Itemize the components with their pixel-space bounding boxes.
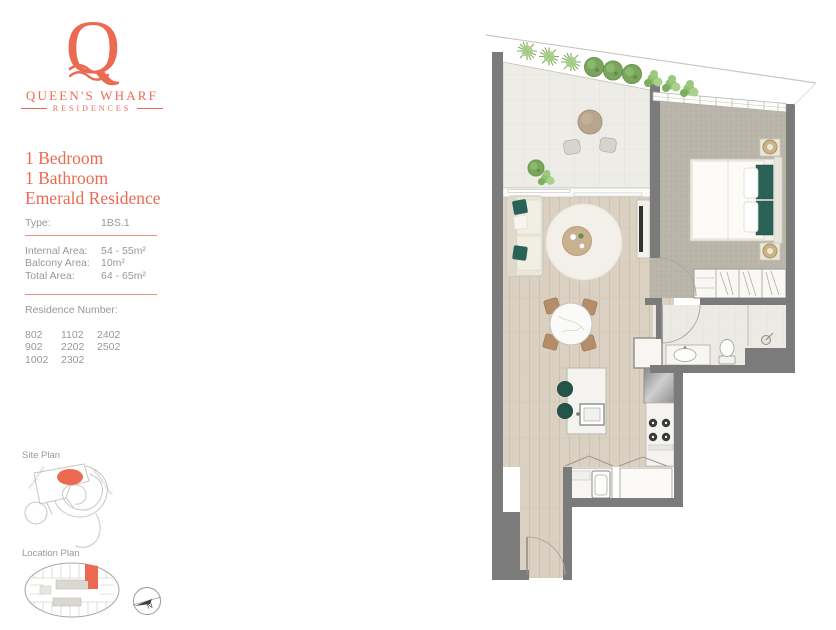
title-line-bedroom: 1 Bedroom	[25, 148, 161, 168]
title-line-bathroom: 1 Bathroom	[25, 168, 161, 188]
pillow-white	[744, 168, 758, 198]
residence-number: 2302	[61, 354, 97, 367]
location-plan-map: N	[14, 556, 166, 626]
dining-table	[550, 303, 592, 345]
throw-pillow	[512, 245, 528, 261]
residence-number: 1002	[25, 354, 61, 367]
residence-number-label: Residence Number:	[25, 304, 157, 317]
vanity	[666, 345, 710, 365]
unit-title: 1 Bedroom 1 Bathroom Emerald Residence	[25, 148, 161, 208]
tagline-rule-right	[137, 108, 163, 109]
balcony-area-label: Balcony Area:	[25, 257, 101, 270]
oven-controls	[649, 445, 673, 450]
logo-wave-icon	[67, 64, 117, 82]
brochure-page: Q QUEEN'S WHARF RESIDENCES 1 Bedroom 1 B…	[0, 0, 836, 630]
tagline-rule-left	[21, 108, 47, 109]
site-plan-map: WILLIAM STREET MARGARET STREET	[8, 460, 123, 552]
storage-closet	[620, 468, 672, 501]
total-area-value: 64 - 65m²	[101, 270, 146, 283]
type-label: Type:	[25, 217, 101, 230]
tv-unit	[637, 200, 650, 258]
kitchen-island	[567, 368, 606, 434]
type-value: 1BS.1	[101, 217, 130, 230]
bedroom	[690, 139, 786, 298]
pillow-teal	[756, 165, 773, 199]
balcony-area-value: 10m²	[101, 257, 125, 270]
residence-number: 1102	[61, 329, 97, 342]
internal-area-value: 54 - 55m²	[101, 245, 146, 258]
residence-number-row: 802 1102 2402	[25, 329, 157, 342]
tagline-text: RESIDENCES	[53, 104, 131, 113]
compass: N	[133, 588, 161, 615]
cooktop-counter	[646, 403, 674, 466]
coffee-table	[563, 227, 592, 256]
pillow-white	[744, 202, 758, 232]
tv	[639, 206, 643, 252]
bed	[690, 157, 782, 243]
internal-area-label: Internal Area:	[25, 245, 101, 258]
basin	[674, 349, 696, 362]
wardrobe	[694, 269, 786, 298]
balcony-chair	[599, 137, 617, 153]
total-area-row: Total Area: 64 - 65m²	[25, 270, 157, 283]
total-area-label: Total Area:	[25, 270, 101, 283]
residence-number: 2402	[97, 329, 133, 342]
residence-number: 802	[25, 329, 61, 342]
residence-number	[97, 354, 133, 367]
toilet	[719, 340, 735, 365]
residence-number: 2502	[97, 341, 133, 354]
bar-stool	[558, 404, 573, 419]
divider-line	[25, 235, 157, 236]
logo-tagline: RESIDENCES	[0, 104, 184, 113]
balcony-chair	[563, 139, 581, 155]
headboard	[774, 157, 782, 243]
logo-wordmark: QUEEN'S WHARF	[0, 88, 184, 104]
sofa	[507, 196, 543, 276]
bar-stool	[558, 382, 573, 397]
type-row: Type: 1BS.1	[25, 217, 157, 230]
residence-number-row: 902 2202 2502	[25, 341, 157, 354]
residence-number: 2202	[61, 341, 97, 354]
residence-number: 902	[25, 341, 61, 354]
highlighted-building	[57, 469, 83, 485]
balcony-area-row: Balcony Area: 10m²	[25, 257, 157, 270]
floor-plan	[478, 28, 820, 584]
residence-number-row: 1002 2302	[25, 354, 157, 367]
pillow-teal	[756, 201, 773, 235]
throw-pillow	[512, 199, 528, 215]
linen-closet	[634, 338, 662, 368]
divider-line	[25, 294, 157, 295]
internal-area-row: Internal Area: 54 - 55m²	[25, 245, 157, 258]
title-line-residence: Emerald Residence	[25, 188, 161, 208]
dining-set	[542, 297, 597, 351]
spec-table: Type: 1BS.1 Internal Area: 54 - 55m² Bal…	[25, 217, 157, 366]
